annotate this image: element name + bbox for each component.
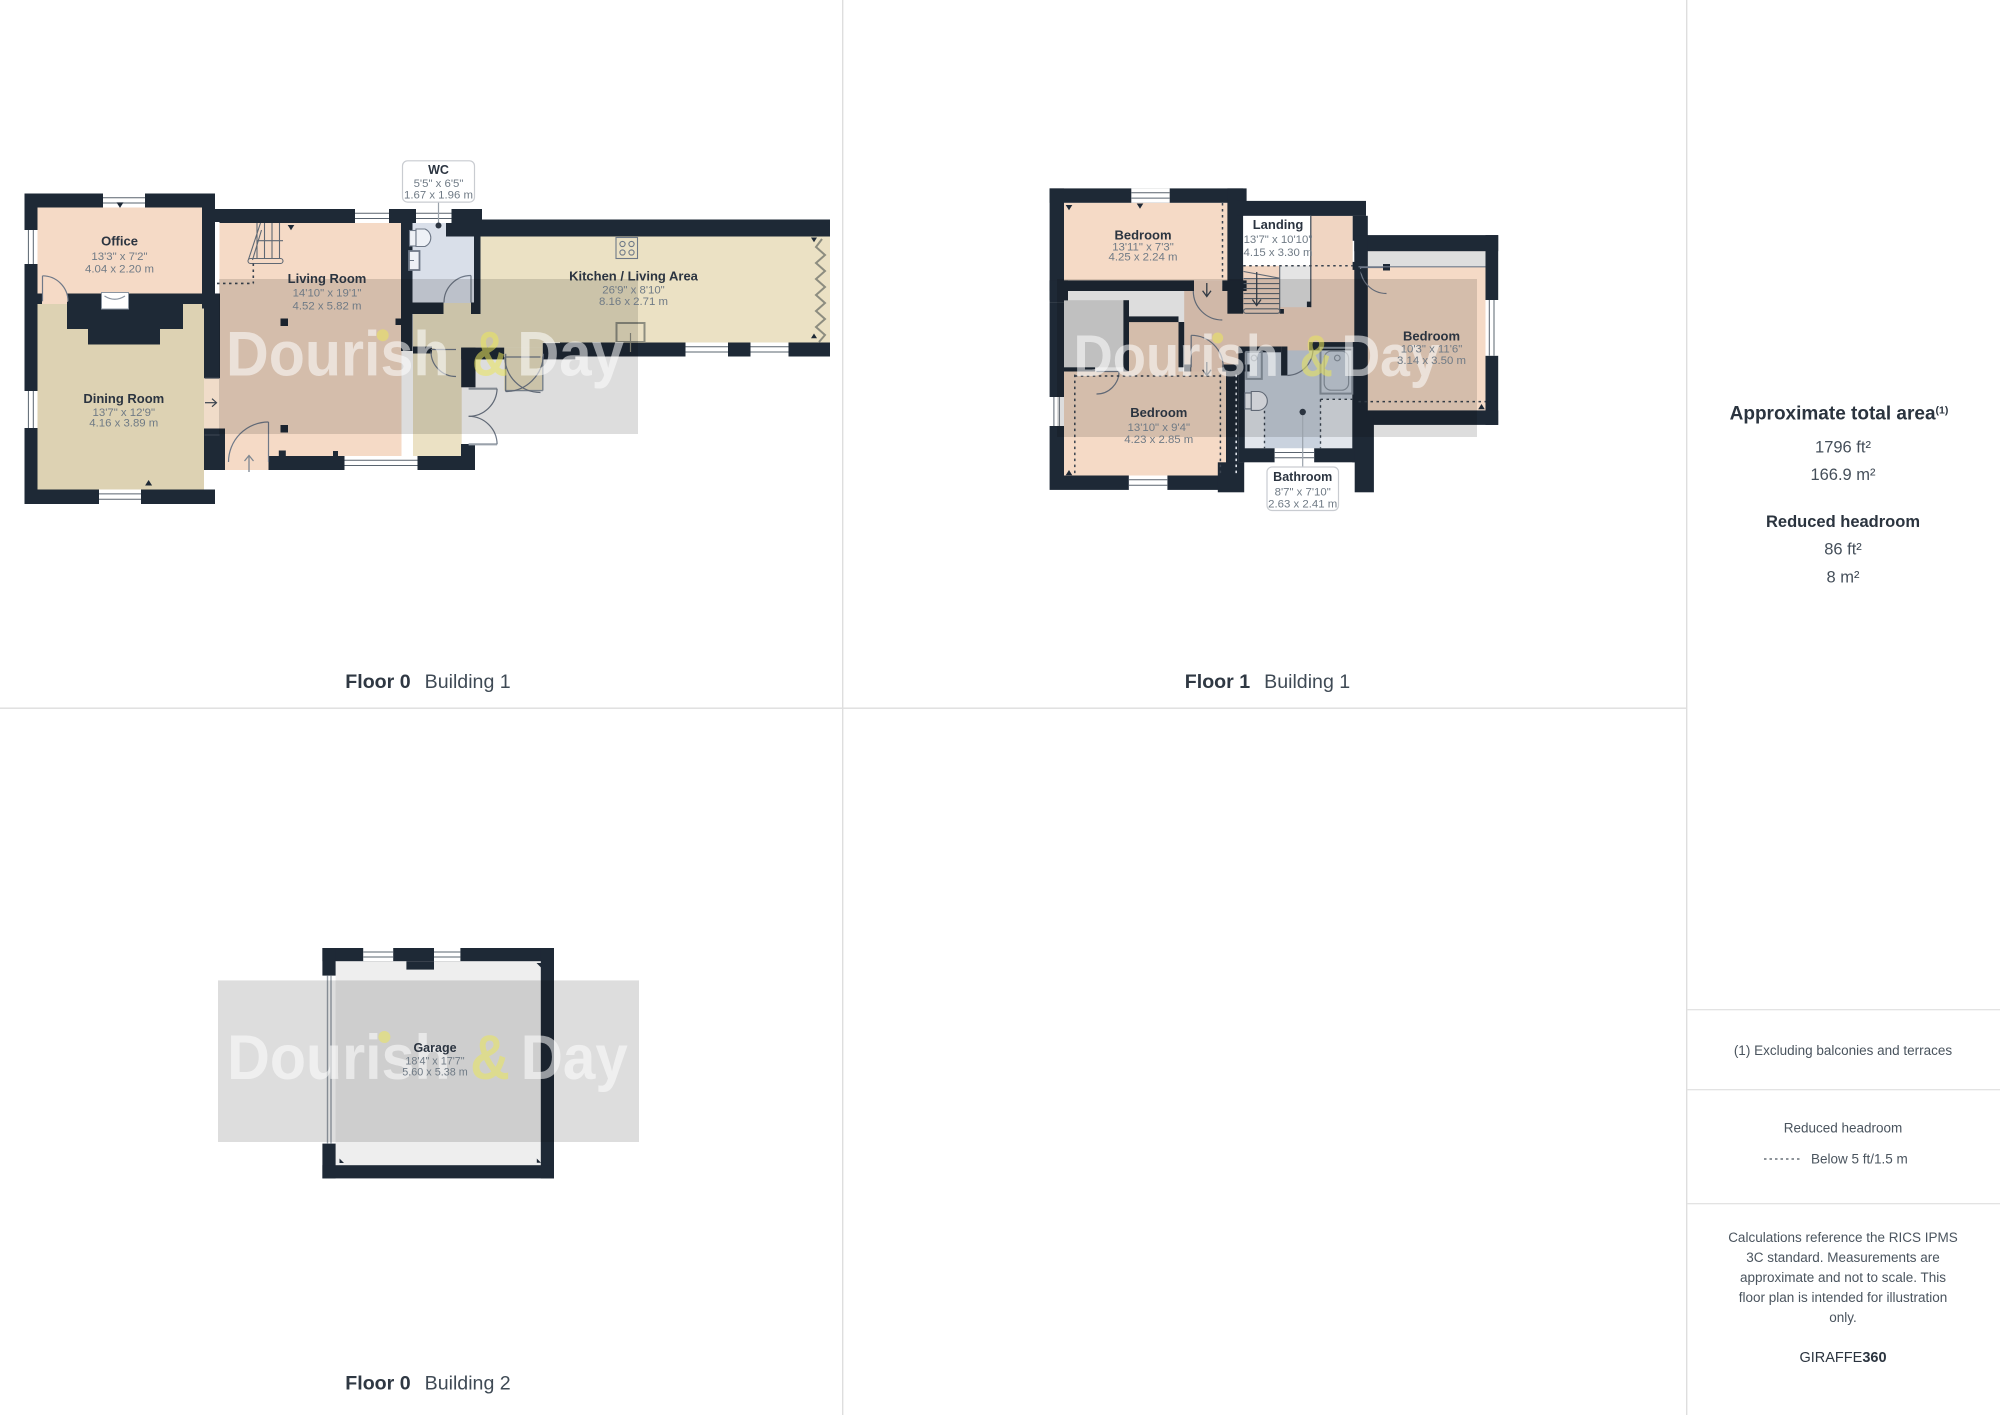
svg-text:13'3" x 7'2": 13'3" x 7'2"	[91, 251, 147, 263]
svg-text:approximate and not to scale.: approximate and not to scale. This	[1740, 1270, 1946, 1285]
svg-text:4.16 x 3.89 m: 4.16 x 3.89 m	[89, 418, 158, 430]
svg-text:Calculations reference the RIC: Calculations reference the RICS IPMS	[1728, 1230, 1958, 1245]
svg-text:Floor 0Building 2: Floor 0Building 2	[345, 1373, 510, 1395]
svg-text:4.15 x 3.30 m: 4.15 x 3.30 m	[1243, 247, 1312, 259]
svg-text:13'10" x 9'4": 13'10" x 9'4"	[1128, 422, 1190, 434]
svg-text:Reduced headroom: Reduced headroom	[1784, 1121, 1903, 1136]
svg-text:14'10" x 19'1": 14'10" x 19'1"	[293, 288, 362, 300]
svg-text:166.9 m²: 166.9 m²	[1810, 466, 1876, 484]
svg-text:5.60 x 5.38 m: 5.60 x 5.38 m	[402, 1066, 467, 1078]
svg-text:1.67 x 1.96 m: 1.67 x 1.96 m	[404, 189, 473, 201]
svg-text:4.23 x 2.85 m: 4.23 x 2.85 m	[1124, 434, 1193, 446]
svg-text:Floor 1Building 1: Floor 1Building 1	[1185, 671, 1350, 693]
svg-text:Day: Day	[521, 1023, 628, 1093]
svg-text:5'5" x 6'5": 5'5" x 6'5"	[414, 178, 464, 190]
svg-text:4.52 x 5.82 m: 4.52 x 5.82 m	[292, 300, 361, 312]
svg-text:&: &	[470, 1023, 510, 1093]
svg-text:Bedroom: Bedroom	[1114, 227, 1171, 242]
svg-text:WC: WC	[428, 163, 449, 177]
svg-text:8.16 x 2.71 m: 8.16 x 2.71 m	[599, 296, 668, 308]
svg-text:8'7" x 7'10": 8'7" x 7'10"	[1275, 487, 1331, 499]
svg-text:Landing: Landing	[1253, 217, 1304, 232]
svg-text:Kitchen / Living Area: Kitchen / Living Area	[569, 268, 699, 283]
svg-text:86 ft²: 86 ft²	[1824, 541, 1862, 559]
svg-text:1796 ft²: 1796 ft²	[1815, 439, 1871, 457]
svg-text:Bedroom: Bedroom	[1403, 329, 1460, 344]
svg-text:Dining Room: Dining Room	[83, 391, 164, 406]
svg-text:Office: Office	[101, 234, 138, 249]
svg-text:Garage: Garage	[413, 1041, 456, 1055]
svg-text:26'9" x 8'10": 26'9" x 8'10"	[602, 284, 664, 296]
svg-text:GIRAFFE360: GIRAFFE360	[1799, 1350, 1886, 1366]
svg-text:Bedroom: Bedroom	[1130, 405, 1187, 420]
svg-text:10'3" x 11'6": 10'3" x 11'6"	[1401, 343, 1463, 355]
svg-text:3C standard. Measurements are: 3C standard. Measurements are	[1746, 1250, 1940, 1265]
svg-text:4.25 x 2.24 m: 4.25 x 2.24 m	[1108, 251, 1177, 263]
svg-text:Below 5 ft/1.5 m: Below 5 ft/1.5 m	[1811, 1152, 1908, 1167]
svg-text:Reduced headroom: Reduced headroom	[1766, 513, 1920, 531]
svg-text:13'7" x 10'10": 13'7" x 10'10"	[1244, 234, 1313, 246]
svg-text:Living Room: Living Room	[288, 271, 367, 286]
svg-text:&: &	[1300, 324, 1333, 389]
svg-text:Bathroom: Bathroom	[1273, 470, 1332, 484]
svg-text:4.04 x 2.20 m: 4.04 x 2.20 m	[85, 264, 154, 276]
svg-text:Floor 0Building 1: Floor 0Building 1	[345, 671, 510, 693]
svg-text:only.: only.	[1829, 1310, 1857, 1325]
svg-text:Dourish: Dourish	[226, 320, 450, 390]
svg-text:Day: Day	[517, 320, 624, 390]
svg-text:3.14 x 3.50 m: 3.14 x 3.50 m	[1397, 355, 1466, 367]
svg-text:Dourish: Dourish	[1074, 324, 1280, 389]
svg-text:8 m²: 8 m²	[1827, 569, 1861, 587]
svg-text:floor plan is intended for ill: floor plan is intended for illustration	[1739, 1290, 1948, 1305]
svg-text:Approximate total area(1): Approximate total area(1)	[1730, 404, 1949, 425]
svg-text:(1) Excluding balconies and te: (1) Excluding balconies and terraces	[1734, 1043, 1953, 1058]
svg-text:2.63 x 2.41 m: 2.63 x 2.41 m	[1268, 499, 1337, 511]
svg-text:&: &	[472, 320, 508, 390]
